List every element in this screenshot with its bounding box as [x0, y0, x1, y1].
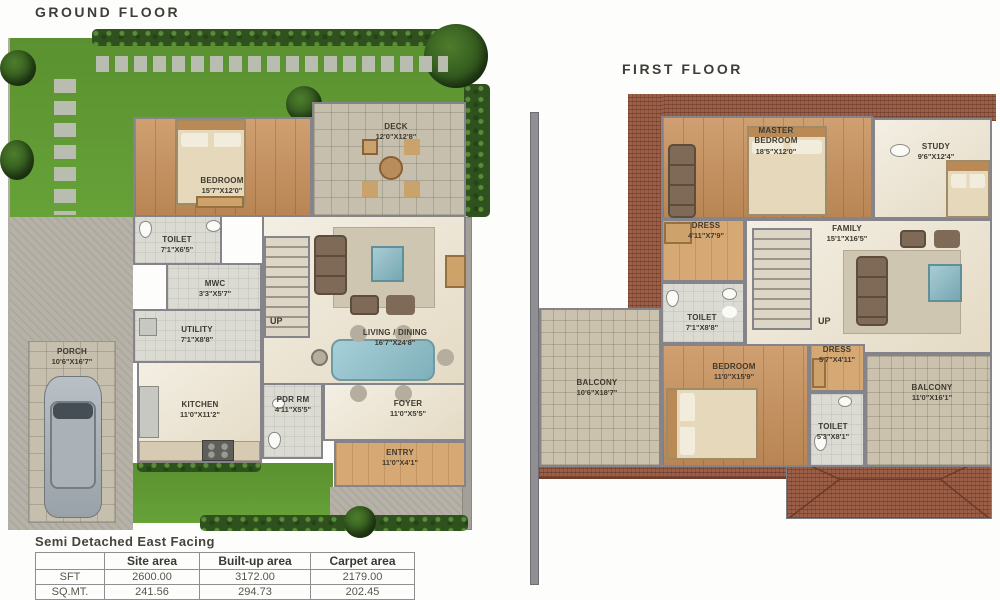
coffee-table	[371, 246, 404, 282]
room-name: KITCHEN	[180, 400, 220, 410]
room-label-toilet-ff1: TOILET7'1"X8'8"	[686, 313, 718, 333]
room-dims: 11'0"X4'1"	[382, 458, 418, 468]
room-dims: 10'6"X18'7"	[577, 388, 618, 398]
cell-value: 241.56	[105, 585, 200, 600]
room-name: TOILET	[817, 422, 849, 432]
first-floor-title: FIRST FLOOR	[622, 61, 743, 77]
room-name: LIVING / DINING	[363, 328, 427, 338]
room-label-deck: DECK12'0"X12'8"	[376, 122, 417, 142]
room-label-utility: UTILITY7'1"X8'8"	[181, 325, 213, 345]
cell-value: 2600.00	[105, 570, 200, 585]
party-wall	[530, 112, 539, 585]
room-dims: 4'11"X7'9"	[688, 231, 724, 241]
roof-eave-strip	[539, 465, 811, 479]
room-label-family: FAMILY15'1"X16'5"	[827, 224, 868, 244]
room-dims: 11'0"X5'5"	[390, 409, 426, 419]
room-name: BEDROOM	[712, 362, 755, 372]
row-label: SFT	[36, 570, 105, 585]
room-name: FOYER	[390, 399, 426, 409]
header-cell-blank	[36, 553, 105, 570]
basin-fixture	[890, 144, 910, 157]
room-dims: 7'1"X6'5"	[161, 245, 193, 255]
table-row: SQ.MT. 241.56 294.73 202.45	[36, 585, 415, 600]
tree-small-icon	[344, 506, 376, 538]
staircase-ff	[752, 228, 812, 330]
hedge-top	[92, 29, 462, 46]
room-label-balcony-left: BALCONY10'6"X18'7"	[577, 378, 618, 398]
room-label-porch: PORCH10'6"X16'7"	[52, 347, 93, 367]
kitchen-fridge-sink	[139, 386, 159, 438]
room-label-kitchen: KITCHEN11'0"X11'2"	[180, 400, 220, 420]
room-label-pdr: PDR RM4'11"X5'5"	[275, 395, 311, 415]
room-name: FAMILY	[827, 224, 868, 234]
room-dims: 10'6"X16'7"	[52, 357, 93, 367]
room-name: DECK	[376, 122, 417, 132]
room-name: PDR RM	[275, 395, 311, 405]
armchairs	[350, 295, 379, 315]
room-dims: 5'3"X8'1"	[817, 432, 849, 442]
room-dims: 18'5"X12'0"	[747, 147, 805, 157]
side-table	[445, 255, 466, 288]
room-label-foyer: FOYER11'0"X5'5"	[390, 399, 426, 419]
table-header-row: Site area Built-up area Carpet area	[36, 553, 415, 570]
dining-chairs	[311, 349, 328, 366]
sofa-furniture	[314, 235, 347, 295]
ground-floor-title: GROUND FLOOR	[35, 4, 180, 20]
kitchen-counter	[139, 441, 260, 461]
room-name: PORCH	[52, 347, 93, 357]
header-cell-carpet-area: Carpet area	[311, 553, 415, 570]
room-dims: 11'0"X16'1"	[912, 393, 953, 403]
room-dims: 11'0"X15'9"	[712, 372, 755, 382]
room-label-entry: ENTRY11'0"X4'1"	[382, 448, 418, 468]
up-label-ground-floor: UP	[270, 316, 283, 326]
room-name: DRESS	[819, 345, 855, 355]
cell-value: 2179.00	[311, 570, 415, 585]
room-dims: 12'0"X12'8"	[376, 132, 417, 142]
area-summary-table: Site area Built-up area Carpet area SFT …	[35, 552, 415, 600]
room-dims: 15'1"X16'5"	[827, 234, 868, 244]
bush-left-icon	[0, 140, 34, 180]
dresser-furniture	[196, 196, 244, 208]
stepping-stones-column	[54, 79, 76, 215]
room-dims: 3'3"X5'7"	[199, 289, 231, 299]
coffee-table	[928, 264, 962, 302]
room-name: BALCONY	[912, 383, 953, 393]
room-name: STUDY	[918, 142, 955, 152]
stove-appliance	[202, 440, 234, 461]
car-top-view	[44, 376, 102, 518]
room-dims: 7'1"X8'8"	[686, 323, 718, 333]
header-cell-builtup-area: Built-up area	[200, 553, 311, 570]
washer-appliance	[139, 318, 157, 336]
room-name: UTILITY	[181, 325, 213, 335]
room-name: BALCONY	[577, 378, 618, 388]
room-label-bedroom-ff: BEDROOM11'0"X15'9"	[712, 362, 755, 382]
room-name: MWC	[199, 279, 231, 289]
lawn-bottom	[133, 463, 333, 523]
room-label-living-dining: LIVING / DINING16'7"X24'8"	[363, 328, 427, 348]
bush-left-icon	[0, 50, 36, 86]
room-label-bedroom-gf: BEDROOM15'7"X12'0"	[200, 176, 243, 196]
room-dims: 7'1"X8'8"	[181, 335, 213, 345]
up-label-first-floor: UP	[818, 316, 831, 326]
room-label-dress-ff: DRESS5'7"X4'11"	[819, 345, 855, 365]
cell-value: 294.73	[200, 585, 311, 600]
row-label: SQ.MT.	[36, 585, 105, 600]
room-name: DRESS	[688, 221, 724, 231]
room-balcony-right	[865, 354, 992, 467]
room-dims: 15'7"X12'0"	[200, 186, 243, 196]
room-name: TOILET	[161, 235, 193, 245]
room-label-toilet-ff2: TOILET5'3"X8'1"	[817, 422, 849, 442]
room-dims: 11'0"X11'2"	[180, 410, 220, 420]
room-dims: 16'7"X24'8"	[363, 338, 427, 348]
room-label-balcony-right: BALCONY11'0"X16'1"	[912, 383, 953, 403]
room-label-dress-master: DRESS4'11"X7'9"	[688, 221, 724, 241]
cell-value: 3172.00	[200, 570, 311, 585]
armchairs	[900, 230, 926, 248]
hedge-bottom	[200, 515, 468, 531]
cell-value: 202.45	[311, 585, 415, 600]
basin-fixture	[206, 220, 221, 232]
bed-furniture	[666, 388, 758, 460]
room-label-master-bedroom: MASTER BEDROOM18'5"X12'0"	[747, 126, 805, 157]
room-dims: 9'6"X12'4"	[918, 152, 955, 162]
room-name: BEDROOM	[200, 176, 243, 186]
room-dims: 5'7"X4'11"	[819, 355, 855, 365]
room-label-mwc: MWC3'3"X5'7"	[199, 279, 231, 299]
room-name: MASTER BEDROOM	[747, 126, 805, 147]
daybed-furniture	[946, 160, 990, 218]
basin-fixture	[838, 396, 852, 407]
room-dims: 4'11"X5'5"	[275, 405, 311, 415]
floorplan-canvas: BEDROOM15'7"X12'0" DECK12'0"X12'8" TOILE…	[0, 0, 1000, 600]
basin-fixture	[722, 288, 737, 300]
table-row: SFT 2600.00 3172.00 2179.00	[36, 570, 415, 585]
room-label-toilet-gf: TOILET7'1"X6'5"	[161, 235, 193, 255]
header-cell-site-area: Site area	[105, 553, 200, 570]
hedge-right	[464, 84, 490, 217]
stepping-stones-row	[96, 56, 448, 72]
room-name: TOILET	[686, 313, 718, 323]
sofa-furniture	[668, 144, 696, 218]
room-name: ENTRY	[382, 448, 418, 458]
room-label-study: STUDY9'6"X12'4"	[918, 142, 955, 162]
sofa-furniture	[856, 256, 888, 326]
deck-table	[379, 156, 403, 180]
summary-title: Semi Detached East Facing	[35, 534, 215, 549]
